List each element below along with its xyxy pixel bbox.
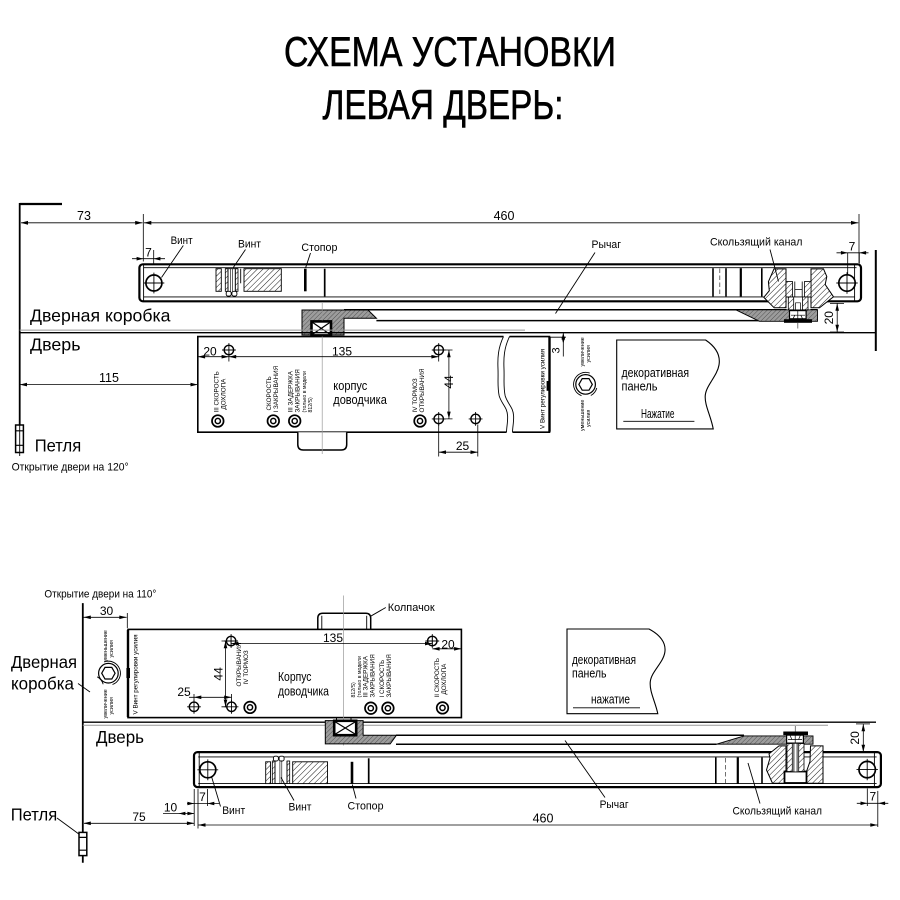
svg-text:Винт: Винт [222,805,245,817]
svg-text:460: 460 [533,812,554,826]
svg-text:Винт: Винт [289,802,312,814]
svg-text:нажатие: нажатие [591,692,630,707]
svg-text:Стопор: Стопор [301,242,337,254]
svg-text:Винт: Винт [171,235,193,247]
svg-text:115: 115 [99,371,119,385]
svg-text:Стопор: Стопор [348,801,384,813]
svg-text:44: 44 [212,667,226,681]
svg-text:7: 7 [145,246,152,260]
svg-text:II СКОРОСТЬДОХЛОПА: II СКОРОСТЬДОХЛОПА [434,658,448,698]
svg-text:20: 20 [441,637,455,651]
svg-text:Двернаякоробка: Двернаякоробка [11,652,77,694]
svg-text:Дверь: Дверь [30,335,81,355]
svg-text:Рычаг: Рычаг [600,799,629,811]
svg-text:Открытие двери на 120°: Открытие двери на 120° [12,462,129,474]
svg-text:20: 20 [848,731,862,745]
svg-text:Винт: Винт [238,239,261,251]
svg-text:7: 7 [849,240,856,254]
svg-text:СХЕМА УСТАНОВКИ: СХЕМА УСТАНОВКИ [284,28,616,75]
svg-text:135: 135 [323,631,343,645]
svg-text:Скользящий канал: Скользящий канал [710,237,803,249]
svg-text:Петля: Петля [11,805,58,825]
svg-text:Открытие двери на 110°: Открытие двери на 110° [44,588,156,600]
svg-text:30: 30 [100,604,114,618]
svg-text:20: 20 [203,344,217,358]
svg-text:V Винт регулировки усилия: V Винт регулировки усилия [133,635,140,715]
svg-text:20: 20 [822,311,836,325]
svg-text:135: 135 [332,344,352,358]
svg-text:I СКОРОСТЬЗАКРЫВАНИЯ: I СКОРОСТЬЗАКРЫВАНИЯ [379,654,393,698]
svg-text:Дверь: Дверь [96,727,144,747]
svg-text:73: 73 [77,209,91,223]
svg-text:10: 10 [164,800,178,814]
svg-text:Скользящий канал: Скользящий канал [733,806,823,818]
svg-text:7: 7 [869,790,876,804]
svg-text:25: 25 [177,685,191,699]
svg-text:7: 7 [199,790,206,804]
svg-text:Дверная коробка: Дверная коробка [30,306,171,326]
svg-text:Колпачок: Колпачок [388,602,435,614]
svg-text:ЛЕВАЯ ДВЕРЬ:: ЛЕВАЯ ДВЕРЬ: [323,81,564,128]
svg-text:460: 460 [494,209,515,223]
svg-text:25: 25 [456,439,470,453]
svg-text:44: 44 [442,375,456,389]
svg-text:Нажатие: Нажатие [641,406,675,421]
svg-text:Петля: Петля [35,436,81,456]
svg-text:Рычаг: Рычаг [592,239,622,251]
svg-text:75: 75 [132,810,146,824]
svg-text:3: 3 [551,347,563,353]
svg-text:V Винт регулировки усилия: V Винт регулировки усилия [540,349,547,429]
